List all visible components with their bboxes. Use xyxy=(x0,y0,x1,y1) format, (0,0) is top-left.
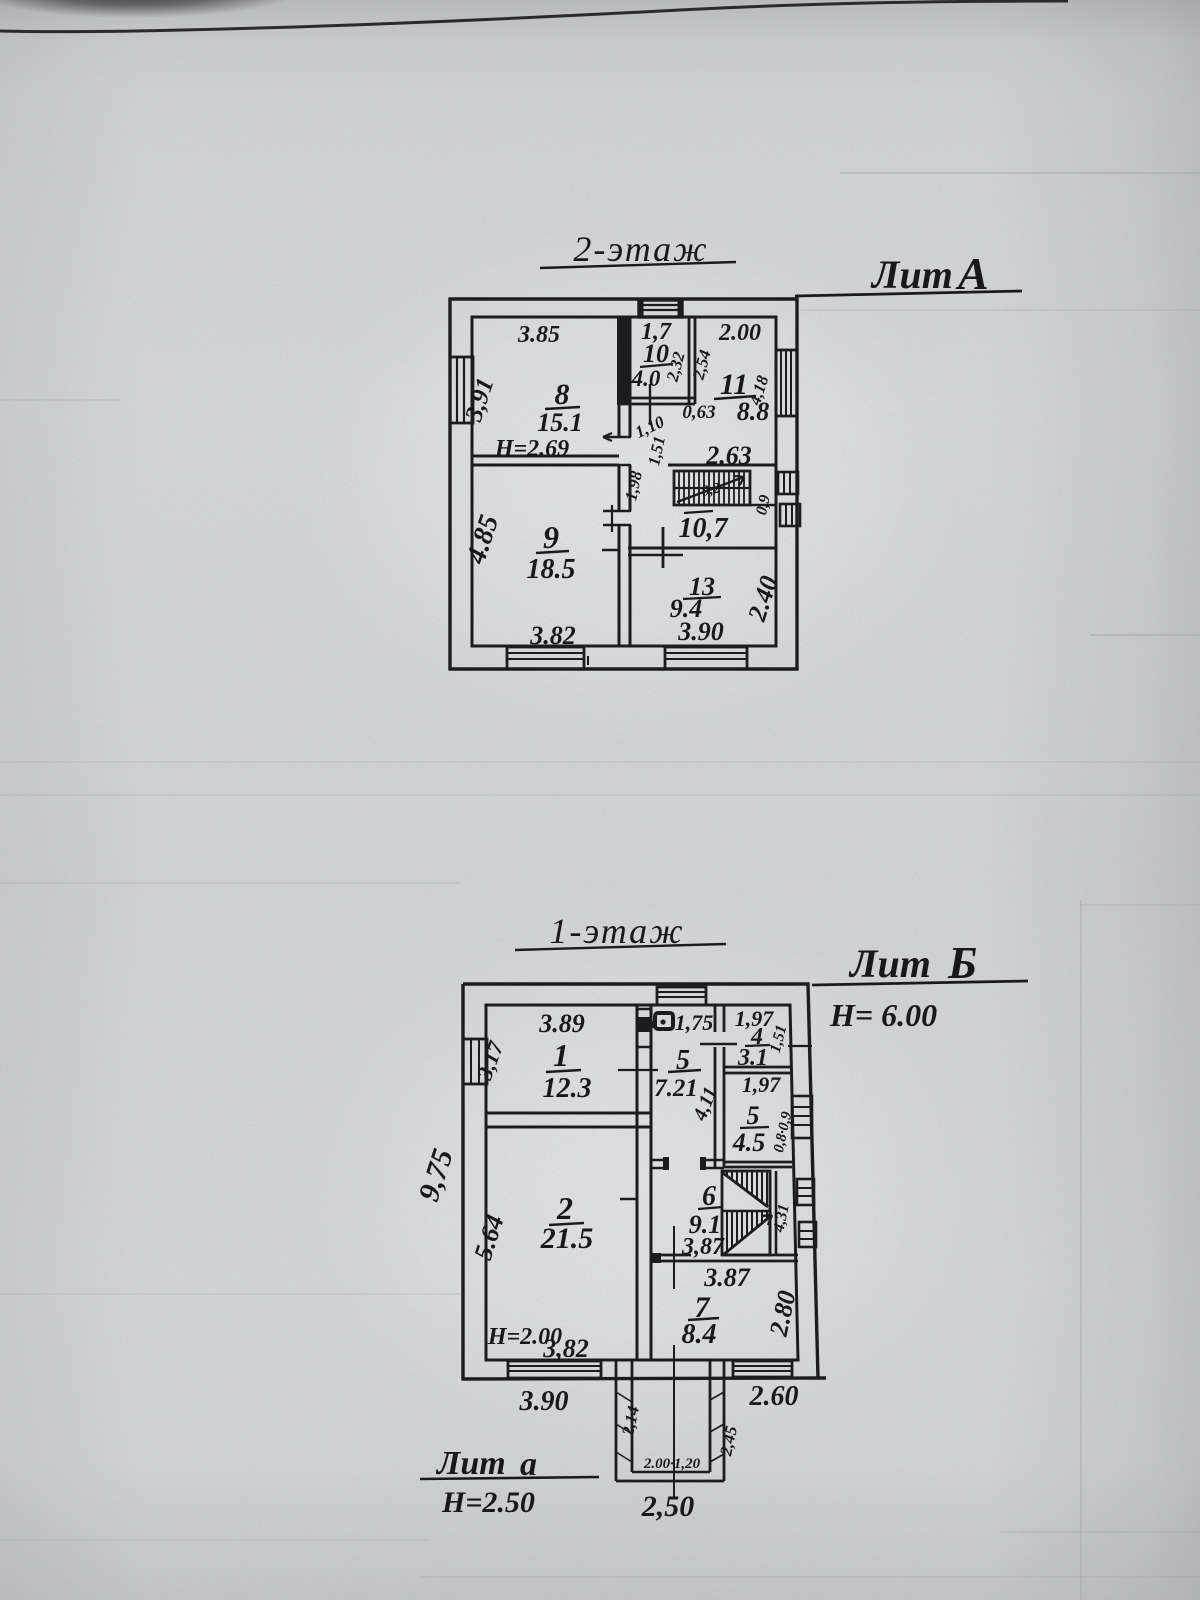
svg-text:Б: Б xyxy=(947,937,977,988)
svg-text:2.00: 2.00 xyxy=(718,320,761,346)
svg-text:3.82: 3.82 xyxy=(529,621,576,650)
svg-text:21.5: 21.5 xyxy=(540,1222,594,1255)
svg-text:10,7: 10,7 xyxy=(679,513,729,544)
svg-text:18.5: 18.5 xyxy=(527,554,576,585)
svg-text:4.0: 4.0 xyxy=(631,366,661,391)
svg-text:3,82: 3,82 xyxy=(542,1334,589,1363)
svg-text:Лит: Лит xyxy=(435,1445,506,1482)
svg-text:3,87: 3,87 xyxy=(681,1234,725,1260)
svg-text:12.3: 12.3 xyxy=(543,1073,592,1104)
svg-text:3.1: 3.1 xyxy=(737,1045,768,1071)
svg-text:3.89: 3.89 xyxy=(538,1009,585,1038)
svg-text:Лит: Лит xyxy=(870,252,953,297)
svg-text:4.5: 4.5 xyxy=(732,1128,766,1157)
svg-text:3.87: 3.87 xyxy=(703,1263,751,1292)
svg-text:2.00·1,20: 2.00·1,20 xyxy=(643,1456,701,1472)
svg-text:1,75: 1,75 xyxy=(675,1010,714,1035)
svg-text:Н=2.69: Н=2.69 xyxy=(494,436,569,462)
svg-text:Н= 6.00: Н= 6.00 xyxy=(829,997,937,1033)
svg-text:2,50: 2,50 xyxy=(641,1490,695,1523)
svg-text:5: 5 xyxy=(747,1101,760,1130)
svg-text:8: 8 xyxy=(555,378,570,411)
svg-text:2.60: 2.60 xyxy=(749,1381,799,1412)
svg-text:Лит: Лит xyxy=(848,941,931,986)
svg-text:3.90: 3.90 xyxy=(677,617,724,646)
svg-text:0,63: 0,63 xyxy=(682,402,715,423)
svg-text:3.85: 3.85 xyxy=(517,322,560,348)
svg-text:15.1: 15.1 xyxy=(537,408,583,437)
svg-text:2.63: 2.63 xyxy=(705,441,752,470)
svg-text:1: 1 xyxy=(553,1037,569,1073)
svg-text:Н=2.50: Н=2.50 xyxy=(441,1486,535,1519)
svg-text:2: 2 xyxy=(556,1190,573,1226)
svg-text:8.4: 8.4 xyxy=(682,1319,717,1350)
svg-text:7.21: 7.21 xyxy=(654,1075,698,1102)
svg-text:1,97: 1,97 xyxy=(742,1072,782,1097)
svg-text:9: 9 xyxy=(543,519,559,555)
svg-text:3.90: 3.90 xyxy=(519,1386,569,1417)
